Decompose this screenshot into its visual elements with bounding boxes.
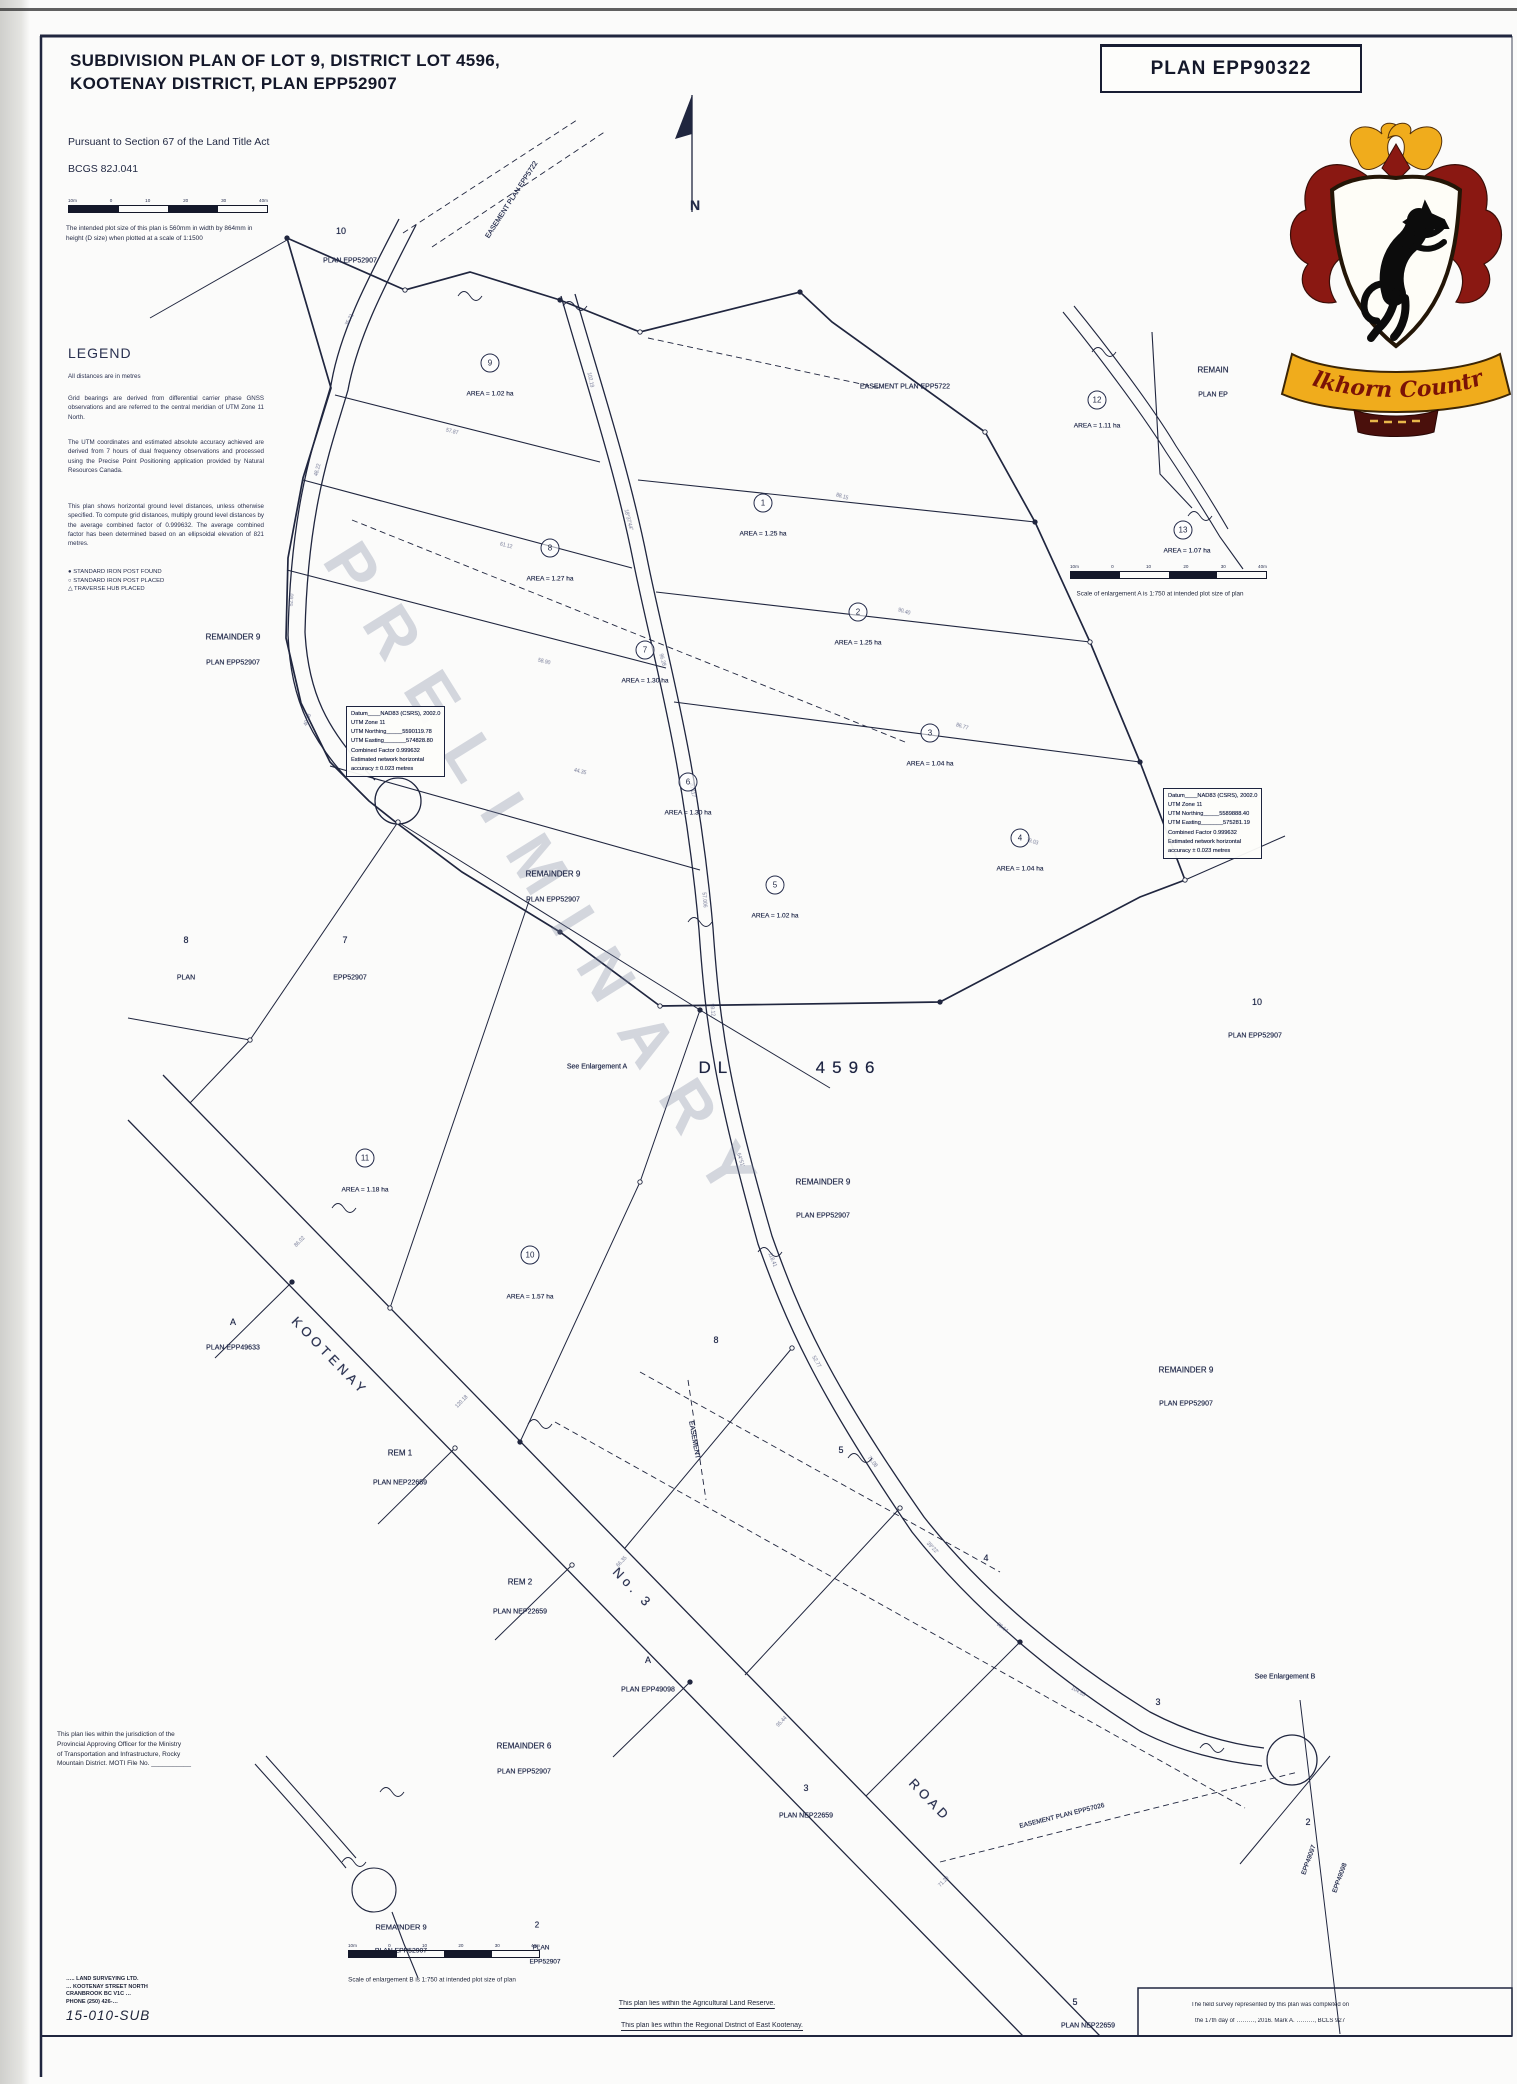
scale-bar-tick: 30 bbox=[221, 198, 226, 203]
lot-area-label: AREA = 1.18 ha bbox=[341, 1187, 388, 1194]
scale-bar-tick: 0 bbox=[110, 198, 113, 203]
plan-label: REMAINDER 9 bbox=[796, 1178, 851, 1187]
legend-paragraph-3: This plan shows horizontal ground level … bbox=[68, 502, 264, 548]
enlargement-a-lines bbox=[1063, 306, 1243, 569]
lot-number-circle: 7 bbox=[636, 641, 655, 660]
scale-bar-tick: 10 bbox=[422, 1943, 427, 1948]
scale-bar-segment bbox=[218, 206, 268, 212]
scale-bar-tick: 30 bbox=[495, 1943, 500, 1948]
scale-bar-segment bbox=[69, 206, 119, 212]
legend-heading: LEGEND bbox=[68, 345, 132, 361]
scale-bar-segment bbox=[349, 1951, 397, 1957]
plan-number-label: PLAN EPP90322 bbox=[1151, 58, 1312, 80]
datum-line: Combined Factor 0.999632 bbox=[1168, 829, 1257, 838]
plan-label: A bbox=[230, 1317, 236, 1327]
lot-area-label: AREA = 1.25 ha bbox=[834, 640, 881, 647]
datum-line: UTM Easting_______574828.80 bbox=[351, 737, 440, 746]
legend-symbol-row: ● STANDARD IRON POST FOUND bbox=[68, 568, 164, 577]
plan-label: 3 bbox=[1155, 1697, 1160, 1707]
plan-label: PLAN NEP22659 bbox=[1061, 2023, 1115, 2030]
scale-bar-tick: 20 bbox=[1183, 564, 1188, 569]
legend-distances: All distances are in metres bbox=[68, 372, 264, 381]
scale-bar-tick: 30 bbox=[1221, 564, 1226, 569]
datum-line: UTM Northing_____5589888.40 bbox=[1168, 810, 1257, 819]
plan-label: N bbox=[690, 197, 700, 213]
plan-label: PLAN NEP22659 bbox=[779, 1813, 833, 1820]
plan-label: PLAN EPP52907 bbox=[1228, 1033, 1282, 1040]
scale-bar-tick: 10 bbox=[1146, 564, 1151, 569]
plan-label: PLAN EPP52907 bbox=[1159, 1401, 1213, 1408]
scale-bar-segments bbox=[348, 1950, 540, 1958]
datum-line: Combined Factor 0.999632 bbox=[351, 747, 440, 756]
scale-bar-tick-labels: 10m010203040m bbox=[1070, 564, 1267, 569]
plan-number-box: PLAN EPP90322 bbox=[1100, 44, 1362, 93]
plan-label: PLAN EPP52907 bbox=[796, 1213, 850, 1220]
lot-number-circle: 10 bbox=[521, 1246, 540, 1265]
datum-line: UTM Zone 11 bbox=[351, 719, 440, 728]
datum-line: Estimated network horizontal bbox=[1168, 838, 1257, 847]
plan-label: PLAN EPP52907 bbox=[497, 1769, 551, 1776]
survey-firm-line: PHONE (250) 426-… bbox=[66, 1999, 148, 2007]
scale-bar-tick: 10m bbox=[1070, 564, 1079, 569]
lot-area-label: AREA = 1.04 ha bbox=[906, 761, 953, 768]
legend-symbols: ● STANDARD IRON POST FOUND○ STANDARD IRO… bbox=[68, 568, 164, 594]
scale-bar-tick: 40m bbox=[259, 198, 268, 203]
lot-area-label: AREA = 1.25 ha bbox=[739, 531, 786, 538]
scale-bar-tick: 0 bbox=[388, 1943, 391, 1948]
scale-bar-tick: 10m bbox=[68, 198, 77, 203]
datum-line: accuracy ± 0.023 metres bbox=[351, 765, 440, 774]
moti-note-line: Mountain District. MOTI File No. _______… bbox=[57, 1759, 191, 1769]
scale-bar-segment bbox=[444, 1951, 492, 1957]
plan-label: PLAN EPP52907 bbox=[323, 258, 377, 265]
plan-label: 2 bbox=[1305, 1817, 1310, 1827]
lot-number-circle: 12 bbox=[1088, 391, 1107, 410]
scale-bar-tick: 10m bbox=[348, 1943, 357, 1948]
moti-note-line: Provincial Approving Officer for the Min… bbox=[57, 1740, 191, 1750]
plan-label: A bbox=[645, 1655, 651, 1665]
plan-label: PLAN EPP52907 bbox=[526, 897, 580, 904]
scale-bar-tick-labels: 10m010203040m bbox=[348, 1943, 540, 1948]
plan-label: REM 2 bbox=[508, 1578, 532, 1587]
lot-number-circle: 13 bbox=[1174, 521, 1193, 540]
datum-line: UTM Easting_______575281.19 bbox=[1168, 819, 1257, 828]
plan-label: EPP52907 bbox=[529, 1959, 560, 1966]
lot-area-label: AREA = 1.02 ha bbox=[751, 913, 798, 920]
scanned-subdivision-plan: PRELIMINARY SUBDIVISION PLAN OF LOT 9, D… bbox=[0, 0, 1517, 2084]
lot-number-circle: 6 bbox=[679, 773, 698, 792]
scale-bar: 10m010203040m bbox=[68, 199, 268, 213]
datum-box: Datum____NAD83 (CSRS), 2002.0UTM Zone 11… bbox=[1163, 788, 1262, 859]
plan-label: REMAINDER 6 bbox=[497, 1742, 552, 1751]
plan-label: PLAN EP bbox=[1198, 392, 1228, 399]
scale-bar-tick: 40m bbox=[1258, 564, 1267, 569]
scale-bar-tick: 10 bbox=[145, 198, 150, 203]
scale-bar-tick: 0 bbox=[1111, 564, 1114, 569]
bearing-distance-tick: 57.006 bbox=[700, 892, 707, 908]
plan-label: PLAN EPP49098 bbox=[621, 1687, 675, 1694]
lot-number-circle: 9 bbox=[481, 354, 500, 373]
lot-number-circle: 1 bbox=[754, 494, 773, 513]
bearing-distance-tick: 99.12 bbox=[708, 1003, 715, 1016]
plan-label: 4 bbox=[983, 1553, 988, 1563]
plan-label: 5 bbox=[1072, 1997, 1077, 2007]
scale-bar-segment bbox=[397, 1951, 445, 1957]
legend-symbol-row: ○ STANDARD IRON POST PLACED bbox=[68, 577, 164, 586]
plan-label: REMAINDER 9 bbox=[375, 1923, 426, 1932]
plan-label: PLAN bbox=[177, 975, 195, 982]
plan-label: REMAINDER 9 bbox=[206, 633, 261, 642]
lot-number-circle: 3 bbox=[921, 724, 940, 743]
plan-label: REMAINDER 9 bbox=[526, 870, 581, 879]
plan-label: REMAIN bbox=[1197, 366, 1228, 375]
pursuant-note: Pursuant to Section 67 of the Land Title… bbox=[68, 136, 269, 148]
file-number: 15-010-SUB bbox=[66, 2008, 150, 2023]
lot-number-circle: 5 bbox=[766, 876, 785, 895]
scale-bar-tick: 20 bbox=[458, 1943, 463, 1948]
lot-area-label: AREA = 1.07 ha bbox=[1163, 548, 1210, 555]
plan-label: 10 bbox=[1252, 997, 1262, 1007]
easement-dashed-lines bbox=[352, 120, 1298, 1862]
plan-label: 10 bbox=[336, 226, 346, 236]
survey-firm-line: … KOOTENAY STREET NORTH bbox=[66, 1984, 148, 1992]
moti-jurisdiction-note: This plan lies within the jurisdiction o… bbox=[57, 1730, 191, 1769]
moti-note-line: of Transportation and Infrastructure, Ro… bbox=[57, 1750, 191, 1760]
scale-bar-segment bbox=[492, 1951, 540, 1957]
plan-label: 2 bbox=[535, 1921, 539, 1930]
scale-bar-segments bbox=[68, 205, 268, 213]
plan-label: PLAN EPP52907 bbox=[206, 660, 260, 667]
bcgs-ref: BCGS 82J.041 bbox=[68, 163, 138, 175]
plan-label: PLAN NEP22659 bbox=[493, 1609, 547, 1616]
survey-firm-block: ….. LAND SURVEYING LTD.… KOOTENAY STREET… bbox=[66, 1976, 148, 2007]
scale-bar-segment bbox=[168, 206, 218, 212]
legend-paragraph-1: Grid bearings are derived from different… bbox=[68, 394, 264, 422]
plan-title-line1: SUBDIVISION PLAN OF LOT 9, DISTRICT LOT … bbox=[70, 50, 500, 73]
datum-line: accuracy ± 0.023 metres bbox=[1168, 847, 1257, 856]
lot-number-circle: 2 bbox=[849, 603, 868, 622]
legend-symbol-row: △ TRAVERSE HUB PLACED bbox=[68, 585, 164, 594]
scale-bar-segment bbox=[119, 206, 169, 212]
datum-line: Datum____NAD83 (CSRS), 2002.0 bbox=[351, 710, 440, 719]
plan-label: REM 1 bbox=[388, 1449, 412, 1458]
plan-label: DL 4596 bbox=[699, 1058, 882, 1078]
scale-bar: 10m010203040m bbox=[1070, 565, 1267, 579]
curve-symbols bbox=[332, 292, 1224, 1867]
lot-area-label: AREA = 1.27 ha bbox=[526, 576, 573, 583]
plan-label: See Enlargement B bbox=[1255, 1674, 1316, 1681]
datum-line: Estimated network horizontal bbox=[351, 756, 440, 765]
lot-number-circle: 8 bbox=[541, 539, 560, 558]
plan-title: SUBDIVISION PLAN OF LOT 9, DISTRICT LOT … bbox=[70, 50, 500, 96]
enlargement-a-caption: Scale of enlargement A is 1:750 at inten… bbox=[1077, 591, 1244, 598]
plan-label: PLAN NEP22659 bbox=[373, 1480, 427, 1487]
scale-bar-segment bbox=[1071, 572, 1120, 578]
alr-note: This plan lies within the Agricultural L… bbox=[619, 2000, 775, 2009]
plan-label: EASEMENT PLAN EPP5722 bbox=[860, 384, 950, 391]
lower-banner bbox=[1354, 410, 1438, 437]
survey-firm-line: CRANBROOK BC V1C … bbox=[66, 1991, 148, 1999]
plan-label: 3 bbox=[803, 1783, 808, 1793]
survey-completion-note-line2: the 17th day of ………, 2016. Mark A. ………, … bbox=[1195, 2018, 1345, 2024]
scale-bar: 10m010203040m bbox=[348, 1944, 540, 1958]
scale-bar-tick: 20 bbox=[183, 198, 188, 203]
plan-label: See Enlargement A bbox=[567, 1064, 627, 1071]
plan-label: 5 bbox=[838, 1445, 843, 1455]
datum-line: Datum____NAD83 (CSRS), 2002.0 bbox=[1168, 792, 1257, 801]
moti-note-line: This plan lies within the jurisdiction o… bbox=[57, 1730, 191, 1740]
plan-label: REMAINDER 9 bbox=[1159, 1366, 1214, 1375]
lot-area-label: AREA = 1.11 ha bbox=[1074, 423, 1121, 430]
datum-line: UTM Northing_____5590119.78 bbox=[351, 728, 440, 737]
datum-box: Datum____NAD83 (CSRS), 2002.0UTM Zone 11… bbox=[346, 706, 445, 777]
lot-area-label: AREA = 1.30 ha bbox=[664, 810, 711, 817]
lot-number-circle: 4 bbox=[1011, 829, 1030, 848]
lot-number-circle: 11 bbox=[356, 1149, 375, 1168]
plan-label: PLAN EPP49633 bbox=[206, 1345, 260, 1352]
legend-paragraph-2: The UTM coordinates and estimated absolu… bbox=[68, 438, 264, 475]
survey-posts bbox=[248, 236, 1187, 1684]
road-kootenay bbox=[128, 1075, 1100, 2036]
scale-bar-segment bbox=[1120, 572, 1169, 578]
plan-label: 8 bbox=[713, 1335, 718, 1345]
lot-area-label: AREA = 1.02 ha bbox=[466, 391, 513, 398]
datum-line: UTM Zone 11 bbox=[1168, 801, 1257, 810]
scale-bar-segments bbox=[1070, 571, 1267, 579]
lot-area-label: AREA = 1.57 ha bbox=[506, 1294, 553, 1301]
plan-label: EPP52907 bbox=[333, 975, 366, 982]
scale-bar-segment bbox=[1217, 572, 1266, 578]
enlargement-b-caption: Scale of enlargement B is 1:750 at inten… bbox=[348, 1977, 516, 1984]
elkhorn-crest-logo: Elkhorn Country bbox=[1278, 118, 1514, 448]
survey-firm-line: ….. LAND SURVEYING LTD. bbox=[66, 1976, 148, 1984]
scale-bar-tick: 40m bbox=[531, 1943, 540, 1948]
rdek-note: This plan lies within the Regional Distr… bbox=[621, 2022, 803, 2031]
bearing-distance-tick: 52.60 bbox=[288, 594, 295, 607]
lot-area-label: AREA = 1.04 ha bbox=[996, 866, 1043, 873]
north-arrow-icon bbox=[675, 95, 692, 212]
plan-label: 8 bbox=[183, 935, 188, 945]
scale-bar-tick-labels: 10m010203040m bbox=[68, 198, 268, 203]
plan-title-line2: KOOTENAY DISTRICT, PLAN EPP52907 bbox=[70, 73, 500, 96]
lot-area-label: AREA = 1.30 ha bbox=[621, 678, 668, 685]
plan-label: 7 bbox=[342, 935, 347, 945]
survey-completion-note-line1: The field survey represented by this pla… bbox=[1191, 2002, 1349, 2008]
scale-bar-segment bbox=[1169, 572, 1218, 578]
plot-size-note: The intended plot size of this plan is 5… bbox=[66, 224, 271, 243]
